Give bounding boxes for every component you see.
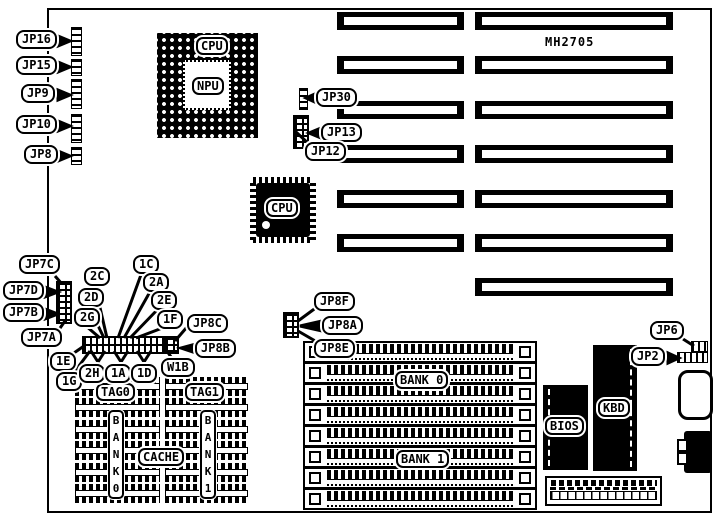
cache-jumper-label-2c: 2C [84, 267, 110, 286]
npu-socket-label: NPU [192, 77, 224, 95]
jumper-label-jp13: JP13 [321, 123, 362, 142]
tag1-label: TAG1 [185, 383, 224, 401]
simm-bank1-label: BANK 1 [396, 450, 449, 468]
jumper-label-jp2: JP2 [631, 347, 665, 366]
simm-bank0-label: BANK 0 [395, 371, 448, 389]
cache-jumper-label-2e: 2E [151, 291, 177, 310]
jumper-label-jp7c: JP7C [19, 255, 60, 274]
jumper-label-jp8f: JP8F [314, 292, 355, 311]
jumper-label-jp12: JP12 [305, 142, 346, 161]
cache-jumper-label-2a: 2A [143, 273, 169, 292]
jumper-label-jp30: JP30 [316, 88, 357, 107]
cache-jumper-label-2h: 2H [79, 364, 105, 383]
jumper-label-jp7d: JP7D [3, 281, 44, 300]
cache-jumper-label-1f: 1F [157, 310, 183, 329]
cache-bank1-label: B A N K 1 [200, 410, 216, 499]
jumper-label-jp9: JP9 [21, 84, 55, 103]
tag0-label: TAG0 [96, 383, 135, 401]
cache-jumper-label-2d: 2D [78, 288, 104, 307]
jumper-label-jp8a: JP8A [322, 316, 363, 335]
cache-jumper-label-1e: 1E [50, 352, 76, 371]
kbd-label: KBD [598, 399, 630, 417]
jumper-label-jp7b: JP7B [3, 303, 44, 322]
jumper-label-jp6: JP6 [650, 321, 684, 340]
cache-jumper-label-2g: 2G [74, 308, 100, 327]
jumper-label-jp8e: JP8E [314, 339, 355, 358]
cache-jumper-label-1c: 1C [133, 255, 159, 274]
cpu-socket-label: CPU [196, 37, 228, 55]
jumper-label-jp8c: JP8C [187, 314, 228, 333]
jumper-label-jp8b: JP8B [195, 339, 236, 358]
jumper-label-jp8: JP8 [24, 145, 58, 164]
motherboard-diagram: MH2705 CPU NPU CPU BANK 0 BANK [0, 0, 716, 520]
cache-jumper-label-1a: 1A [105, 364, 131, 383]
jumper-label-jp10: JP10 [16, 115, 57, 134]
cache-label: CACHE [138, 448, 184, 466]
jumper-label-jp15: JP15 [16, 56, 57, 75]
cache-jumper-label-1d: 1D [131, 364, 157, 383]
bios-label: BIOS [545, 417, 584, 435]
cpu-qfp-label: CPU [266, 199, 298, 217]
jumper-label-jp16: JP16 [16, 30, 57, 49]
cache-jumper-label-w1b: W1B [161, 358, 195, 377]
cache-bank0-label: B A N K 0 [108, 410, 124, 499]
jumper-label-jp7a: JP7A [21, 328, 62, 347]
